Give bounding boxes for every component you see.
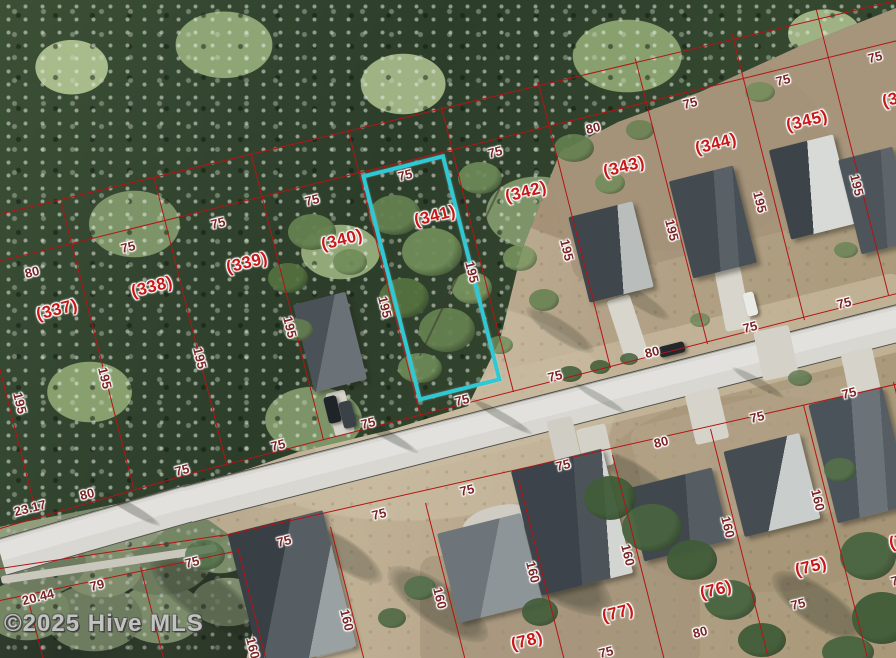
tree-canopy [554,134,594,162]
tree-canopy [529,289,559,311]
tree-canopy [333,249,367,275]
tree-canopy [626,120,654,140]
tree-canopy [503,245,537,271]
tree-canopy [824,458,856,482]
watermark: ©2025 Hive MLS [4,610,204,638]
aerial-parcel-map: (337)(338)(339)(340)(341)(342)(343)(344)… [0,0,896,658]
tree-canopy [834,242,858,258]
tree-canopy [458,162,502,194]
tree-canopy [378,608,406,628]
tree-canopy [268,263,308,293]
tree-canopy [667,540,717,580]
tree-canopy [788,370,812,386]
